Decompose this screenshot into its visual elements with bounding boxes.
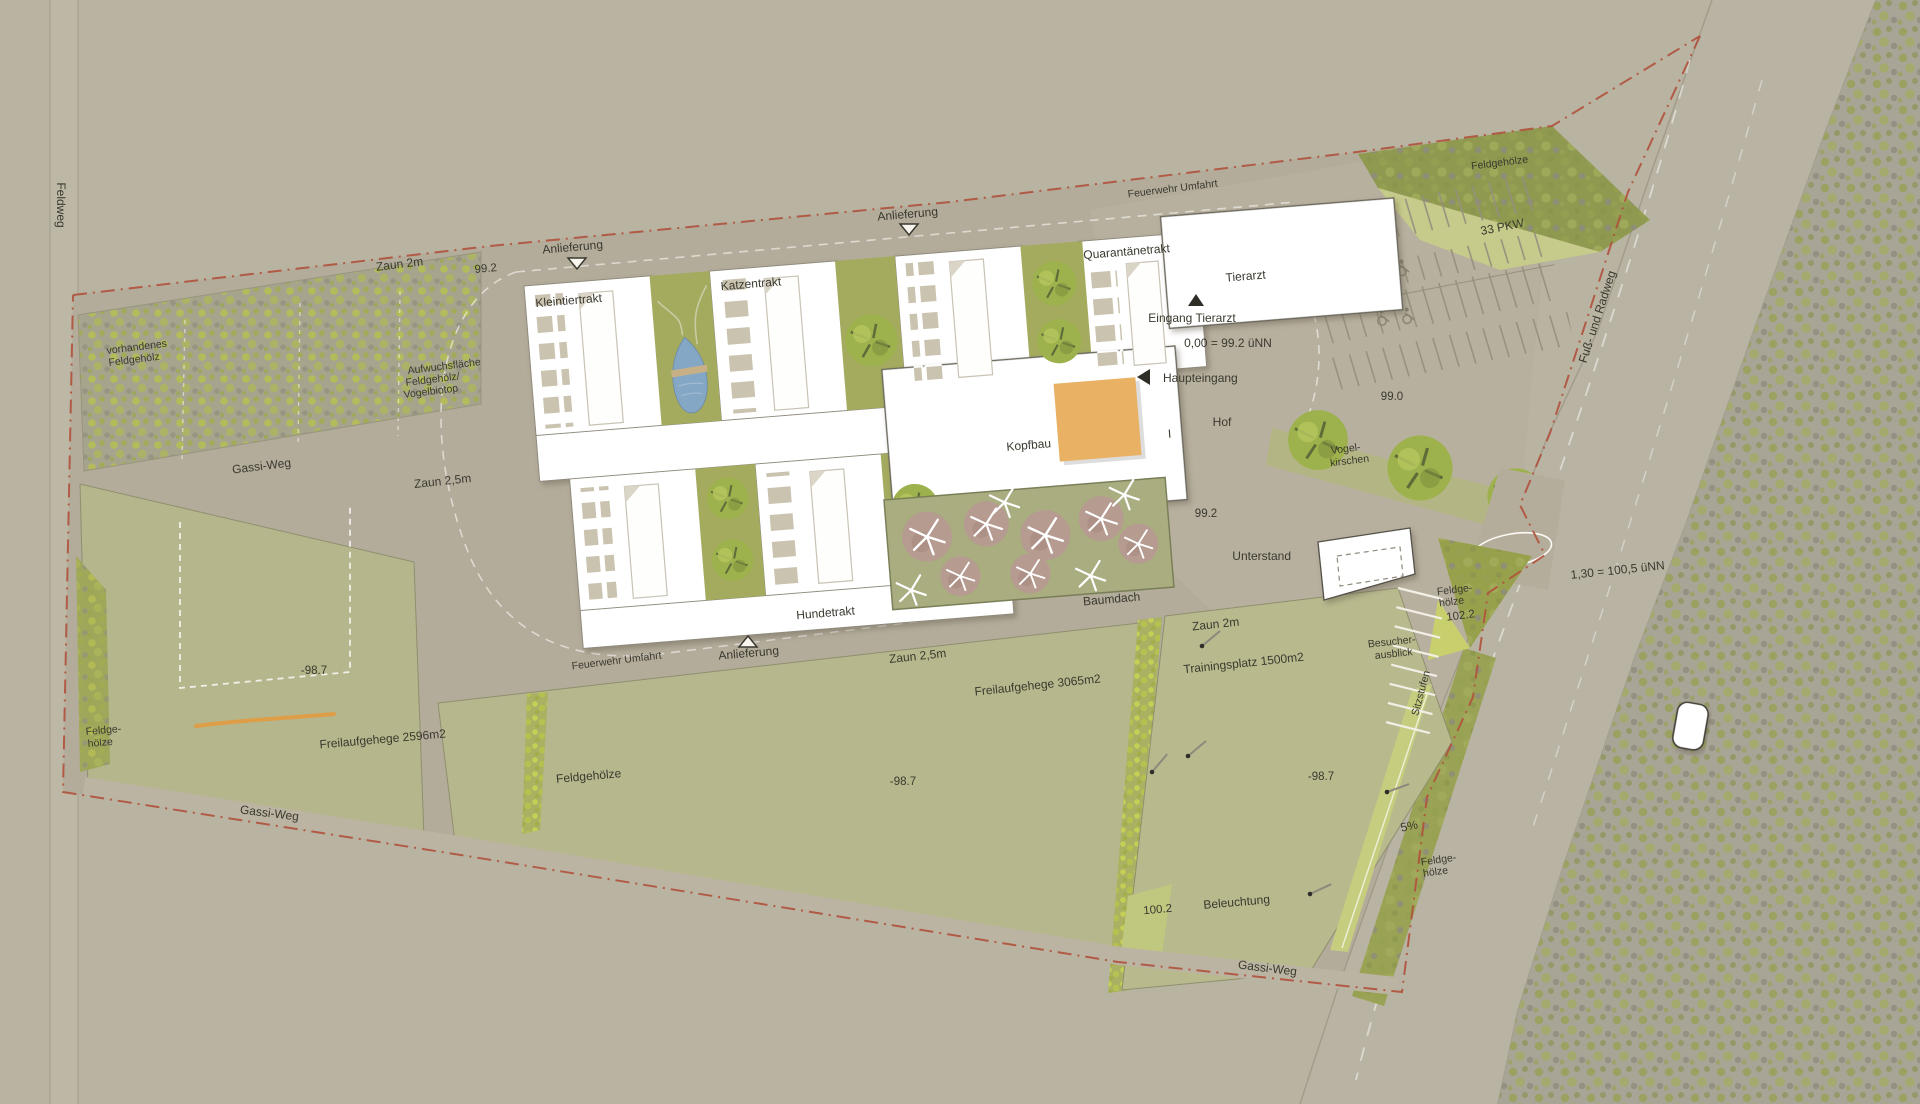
elev-99-0-label: 99.0 bbox=[1381, 391, 1403, 403]
elev-99-2-nw-label: 99.2 bbox=[474, 262, 497, 276]
elev-99-2-hof-label: 99.2 bbox=[1195, 508, 1217, 520]
atrium-orange bbox=[1054, 377, 1142, 461]
elev-98-7-west-label: -98.7 bbox=[301, 665, 327, 677]
site-plan-page: 33 PKW bbox=[0, 0, 1920, 1104]
feldweg-label: Feldweg bbox=[54, 182, 68, 227]
elev-98-7-ost-label: -98.7 bbox=[1308, 771, 1334, 783]
site-plan-canvas: 33 PKW bbox=[0, 0, 1920, 1104]
unterstand-label: Unterstand bbox=[1232, 549, 1291, 563]
tree-icon bbox=[1388, 436, 1453, 501]
eingang-tierarzt-label: Eingang Tierarzt bbox=[1148, 311, 1236, 325]
elev-98-7-mitte-label: -98.7 bbox=[890, 776, 916, 788]
tierarzt-building bbox=[1160, 198, 1402, 328]
elev-100-2-label: 100.2 bbox=[1143, 903, 1173, 917]
hof-label: Hof bbox=[1213, 415, 1232, 429]
haupteingang-label: Haupteingang bbox=[1163, 371, 1238, 385]
hoehe-null-label: 0,00 = 99.2 üNN bbox=[1184, 336, 1272, 350]
feldgehoelze-west-label-2: hölze bbox=[87, 736, 113, 750]
